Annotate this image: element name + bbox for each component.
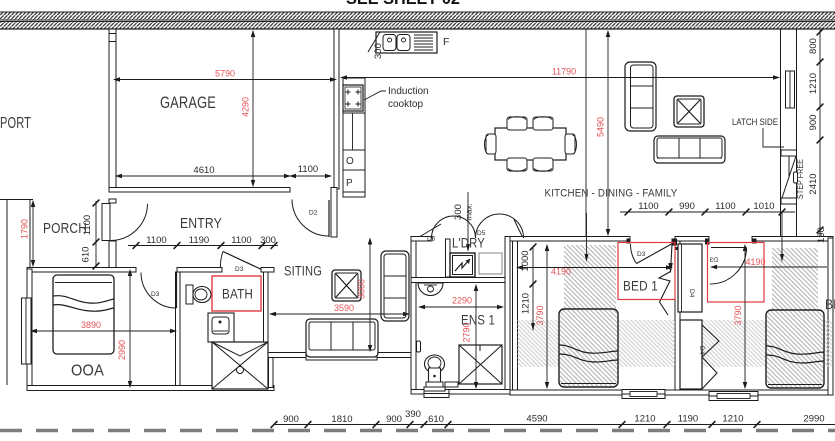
svg-text:BED 2: BED 2 (825, 296, 835, 312)
svg-text:2990: 2990 (803, 414, 824, 425)
svg-text:BATH: BATH (222, 286, 253, 302)
svg-text:GARAGE: GARAGE (160, 94, 216, 112)
svg-text:1100: 1100 (715, 201, 735, 212)
svg-text:D3: D3 (709, 256, 718, 263)
svg-text:1210: 1210 (634, 414, 655, 425)
svg-text:D6: D6 (427, 236, 436, 243)
svg-text:300: 300 (260, 235, 276, 246)
svg-text:2990: 2990 (117, 340, 127, 360)
svg-text:4590: 4590 (526, 414, 547, 425)
svg-text:900: 900 (808, 115, 819, 131)
svg-text:1100: 1100 (146, 235, 166, 246)
svg-text:3790: 3790 (733, 305, 743, 325)
svg-text:D3: D3 (151, 291, 160, 298)
svg-text:190: 190 (816, 227, 827, 243)
svg-text:300: 300 (373, 43, 384, 59)
svg-text:PORCH: PORCH (43, 220, 87, 237)
svg-text:1190: 1190 (189, 235, 209, 246)
svg-text:1210: 1210 (808, 73, 819, 94)
svg-text:BED 1: BED 1 (623, 279, 658, 294)
svg-text:1100: 1100 (231, 235, 251, 246)
svg-text:1010: 1010 (753, 201, 774, 212)
svg-text:D4: D4 (688, 289, 695, 298)
svg-text:KITCHEN - DINING - FAMILY: KITCHEN - DINING - FAMILY (545, 188, 678, 200)
svg-text:1100: 1100 (298, 164, 318, 175)
svg-text:D3: D3 (235, 266, 244, 273)
svg-text:990: 990 (679, 201, 695, 212)
svg-text:4290: 4290 (241, 97, 251, 117)
svg-text:1000: 1000 (520, 250, 531, 271)
svg-text:LATCH SIDE: LATCH SIDE (732, 117, 778, 128)
svg-text:4190: 4190 (551, 267, 571, 277)
svg-text:ENS 1: ENS 1 (461, 313, 495, 328)
svg-text:L'DRY: L'DRY (452, 236, 485, 251)
svg-text:D3: D3 (637, 251, 646, 258)
svg-text:900: 900 (386, 414, 402, 425)
svg-text:610: 610 (428, 414, 444, 425)
svg-text:5490: 5490 (596, 117, 606, 137)
svg-text:610: 610 (81, 247, 92, 263)
svg-text:900: 900 (283, 414, 299, 425)
svg-text:1100: 1100 (638, 201, 658, 212)
svg-text:SITING: SITING (284, 263, 322, 279)
svg-text:P: P (346, 178, 353, 189)
svg-text:3790: 3790 (535, 305, 545, 325)
svg-text:3590: 3590 (334, 303, 354, 313)
svg-text:PORT: PORT (0, 115, 31, 132)
svg-text:4610: 4610 (193, 165, 214, 176)
svg-text:390: 390 (405, 409, 421, 420)
svg-text:max.: max. (465, 203, 474, 220)
svg-text:SEE SHEET 02: SEE SHEET 02 (346, 0, 460, 8)
svg-text:ENTRY: ENTRY (180, 215, 222, 232)
svg-text:11790: 11790 (552, 67, 576, 77)
svg-text:800: 800 (808, 38, 819, 54)
svg-text:Induction: Induction (388, 86, 429, 97)
svg-text:3890: 3890 (81, 320, 101, 330)
svg-text:5790: 5790 (215, 69, 235, 79)
svg-text:D2: D2 (309, 210, 318, 217)
svg-text:2410: 2410 (808, 173, 819, 194)
svg-text:D4: D4 (698, 346, 705, 355)
svg-text:cooktop: cooktop (388, 99, 423, 110)
svg-text:OOA: OOA (71, 363, 104, 380)
svg-text:1190: 1190 (678, 414, 698, 425)
svg-text:1210: 1210 (521, 293, 532, 314)
svg-text:2290: 2290 (452, 296, 472, 306)
svg-text:3000: 3000 (357, 279, 367, 299)
svg-text:1210: 1210 (722, 414, 743, 425)
svg-text:4190: 4190 (745, 257, 765, 267)
svg-text:F: F (443, 36, 449, 48)
svg-text:300: 300 (453, 204, 464, 220)
svg-text:O: O (346, 156, 354, 167)
svg-text:1790: 1790 (20, 219, 30, 239)
svg-text:1810: 1810 (331, 414, 352, 425)
svg-text:STEP FREE: STEP FREE (795, 159, 805, 199)
